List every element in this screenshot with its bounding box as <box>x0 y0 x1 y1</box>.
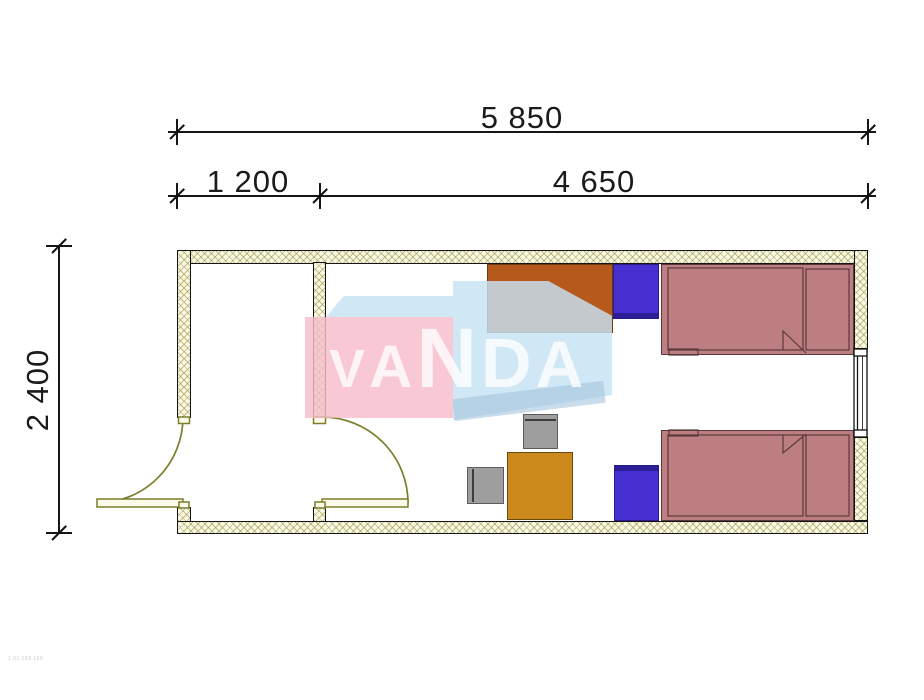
floor-plan-drawing: 5 850 1 200 4 650 2 400 <box>0 0 924 700</box>
interior-door-leaf <box>322 499 408 507</box>
vanda-watermark: V A N D A <box>300 278 612 420</box>
window <box>854 349 867 437</box>
nightstand-top <box>613 264 659 319</box>
bed-bottom <box>661 430 854 521</box>
watermark-letter: V <box>329 342 365 396</box>
entrance-door-swing-arc <box>97 417 183 503</box>
entrance-door-leaf <box>97 499 183 507</box>
chair-left <box>467 467 504 504</box>
dim-line-overall-height <box>58 246 60 533</box>
window-cap-top <box>854 349 867 356</box>
window-cap-bottom <box>854 430 867 437</box>
door-pilaster-left <box>177 507 191 522</box>
wall-left <box>177 250 191 418</box>
door-pilaster-middle <box>313 507 326 522</box>
bed-top <box>661 264 854 355</box>
interior-door-swing-arc <box>322 417 408 503</box>
wall-right-lower <box>854 437 868 521</box>
wall-top <box>177 250 868 264</box>
nightstand-bottom <box>614 465 659 521</box>
dim-line-overall-width <box>168 131 876 133</box>
footer-version-code: 1.91.163.169 <box>8 656 43 662</box>
wall-right-upper <box>854 250 868 349</box>
wall-bottom <box>177 521 868 534</box>
chair-backrest-line <box>472 469 474 502</box>
watermark-letter: A <box>536 331 584 397</box>
watermark-brand-text: V A N D A <box>329 316 587 400</box>
desk <box>507 452 573 520</box>
watermark-letter: N <box>416 316 477 400</box>
dim-label-overall-height: 2 400 <box>20 305 56 475</box>
dim-line-segments <box>168 195 876 197</box>
watermark-letter: D <box>481 328 532 398</box>
nightstand-shade <box>614 313 658 318</box>
watermark-letter: A <box>369 337 412 397</box>
nightstand-shade <box>615 466 658 471</box>
